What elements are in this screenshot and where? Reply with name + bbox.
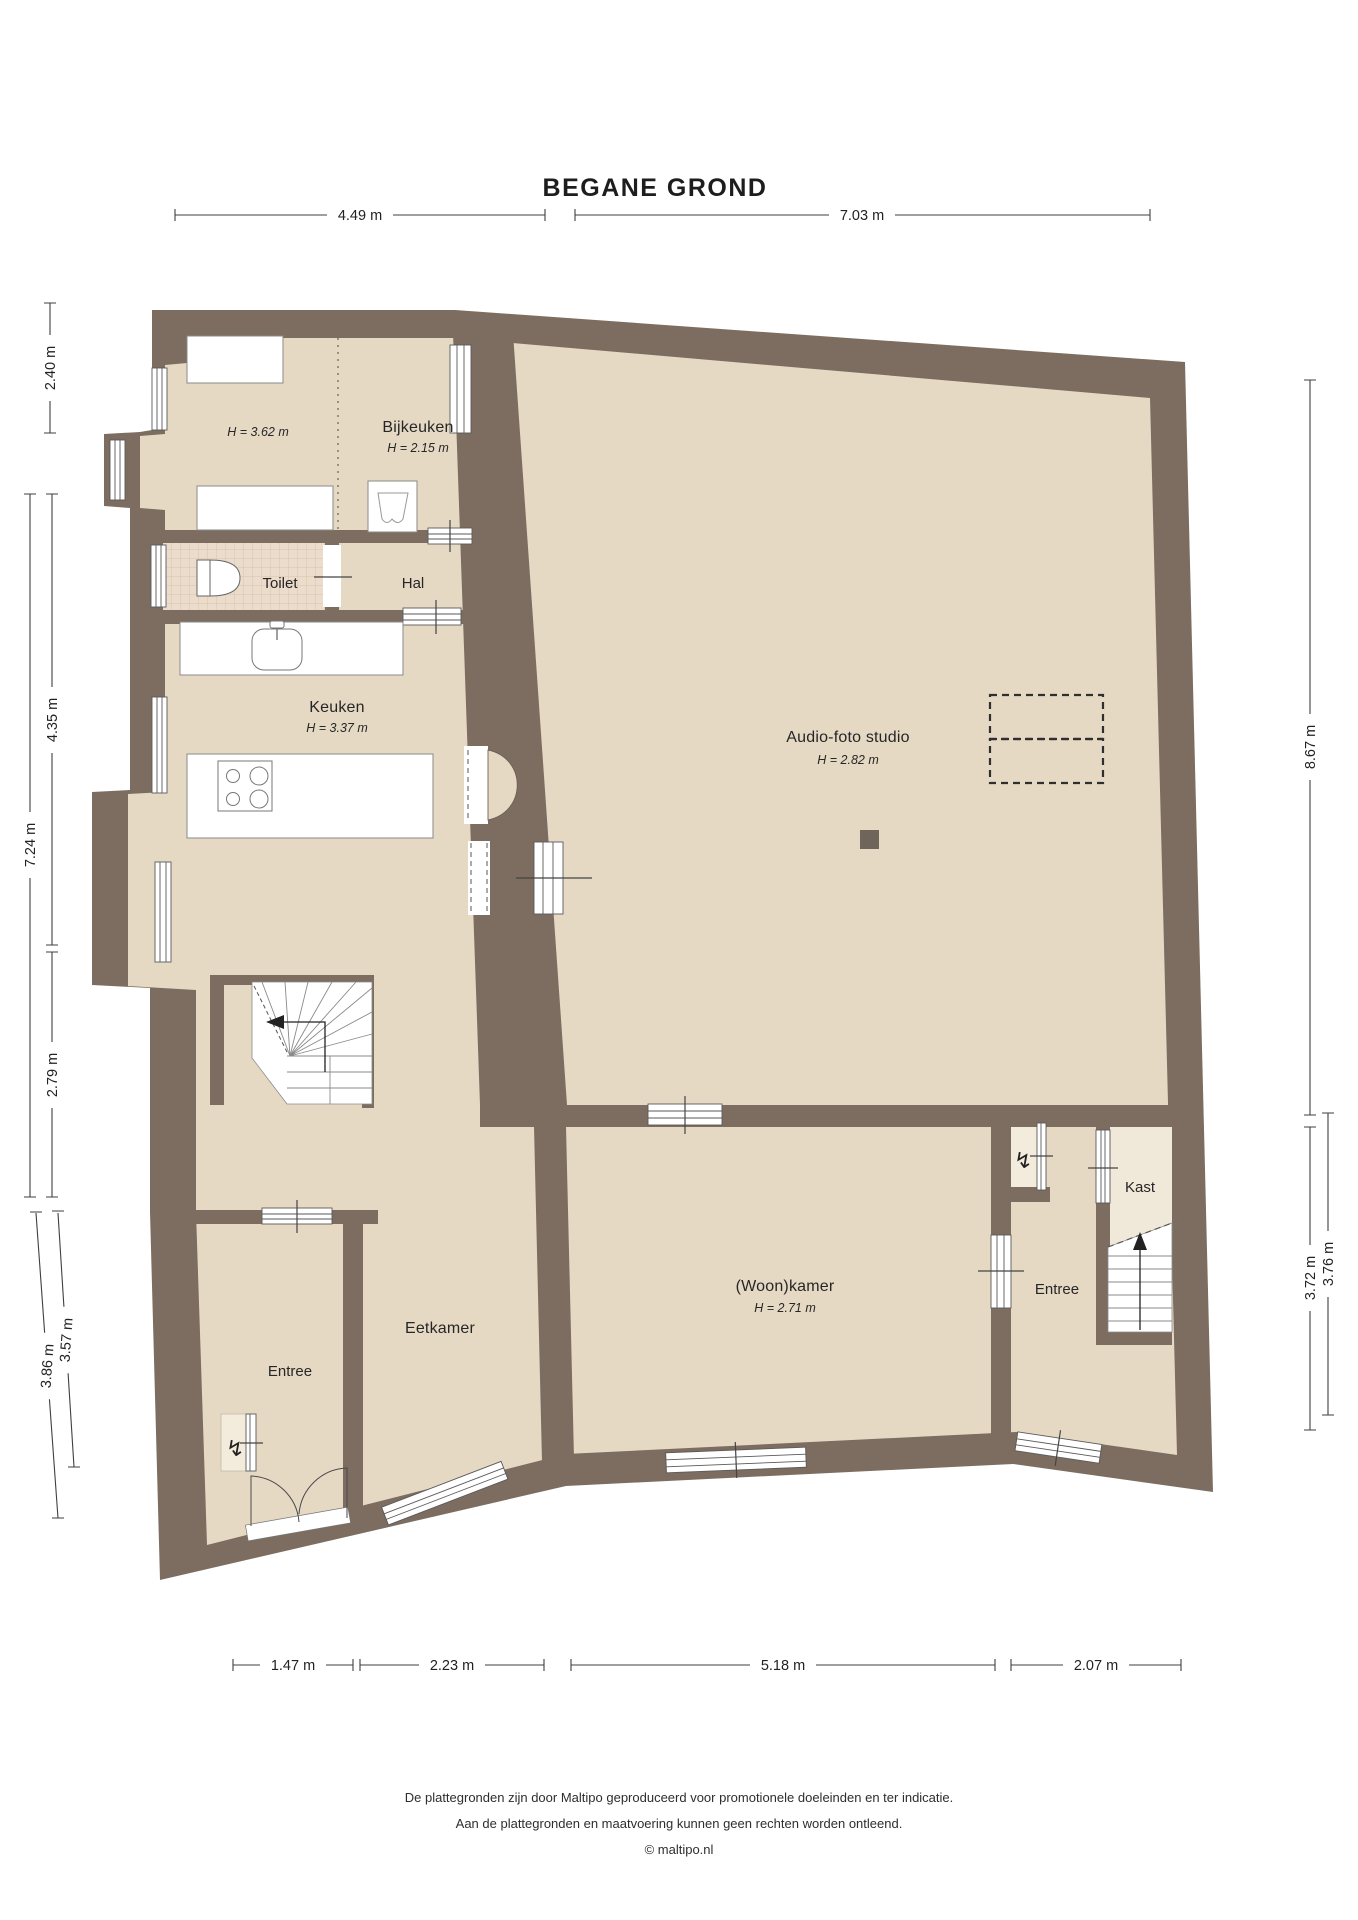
dimension-left-1: 2.40 m <box>40 303 60 433</box>
dimension-bottom-4: 2.07 m <box>1011 1654 1181 1674</box>
dimension-top-2: 7.03 m <box>575 204 1150 224</box>
room-label-entree-right: Entree <box>1035 1281 1079 1298</box>
floorplan-page: BEGANE GROND <box>0 0 1358 1920</box>
stove-icon <box>187 754 433 838</box>
opening-mainwall-dashed <box>468 841 490 915</box>
footer: De plattegronden zijn door Maltipo gepro… <box>405 1790 954 1857</box>
room-label-eetkamer: Eetkamer <box>405 1320 476 1337</box>
room-label-woonkamer: (Woon)kamer <box>736 1278 835 1295</box>
floorplan-drawing: BEGANE GROND <box>0 0 1358 1920</box>
svg-text:2.40 m: 2.40 m <box>43 346 59 390</box>
dimension-left-6: 3.57 m <box>52 1211 80 1467</box>
room-height-keuken: H = 3.37 m <box>306 721 368 735</box>
dimension-bottom-2: 2.23 m <box>360 1654 544 1674</box>
svg-text:3.76 m: 3.76 m <box>1321 1242 1337 1286</box>
room-label-hal: Hal <box>402 575 425 592</box>
window-left-2 <box>110 440 125 500</box>
room-label-studio: Audio-foto studio <box>786 729 909 746</box>
room-label-height-left: H = 3.62 m <box>227 425 289 439</box>
dimension-bottom-1: 1.47 m <box>233 1654 353 1674</box>
room-label-bijkeuken: Bijkeuken <box>382 419 453 436</box>
dimension-left-4: 2.79 m <box>42 952 62 1197</box>
room-height-woonkamer: H = 2.71 m <box>754 1301 816 1315</box>
window-left-3 <box>151 545 166 607</box>
electric-meter-icon-left: ↯ <box>226 1436 244 1461</box>
svg-text:8.67 m: 8.67 m <box>1303 725 1319 769</box>
svg-text:2.23 m: 2.23 m <box>430 1658 474 1674</box>
footer-disclaimer-1: De plattegronden zijn door Maltipo gepro… <box>405 1790 954 1805</box>
svg-text:2.79 m: 2.79 m <box>45 1053 61 1097</box>
window-left-4 <box>152 697 167 793</box>
svg-text:4.49 m: 4.49 m <box>338 208 382 224</box>
sink-icon <box>180 621 403 675</box>
svg-text:2.07 m: 2.07 m <box>1074 1658 1118 1674</box>
footer-copyright: © maltipo.nl <box>645 1842 714 1857</box>
counter-bijkeuken <box>197 486 333 530</box>
washer-icon <box>368 481 417 532</box>
room-label-entree-left: Entree <box>268 1363 312 1380</box>
svg-text:3.72 m: 3.72 m <box>1303 1256 1319 1300</box>
room-label-keuken: Keuken <box>309 699 364 716</box>
window-left-1 <box>152 368 167 430</box>
svg-text:1.47 m: 1.47 m <box>271 1658 315 1674</box>
counter-top-left <box>187 336 283 383</box>
page-title: BEGANE GROND <box>543 174 768 202</box>
room-label-kast: Kast <box>1125 1179 1156 1196</box>
svg-text:7.03 m: 7.03 m <box>840 208 884 224</box>
dimension-right-3: 3.76 m <box>1318 1113 1338 1415</box>
svg-text:4.35 m: 4.35 m <box>45 698 61 742</box>
svg-text:7.24 m: 7.24 m <box>23 823 39 867</box>
electric-meter-icon-right: ↯ <box>1014 1148 1032 1173</box>
footer-disclaimer-2: Aan de plattegronden en maatvoering kunn… <box>456 1816 903 1831</box>
room-height-studio: H = 2.82 m <box>817 753 879 767</box>
column <box>860 830 879 849</box>
dimension-left-3: 7.24 m <box>20 494 40 1197</box>
room-height-bijkeuken: H = 2.15 m <box>387 441 449 455</box>
window-left-5 <box>155 862 171 962</box>
dimension-bottom-3: 5.18 m <box>571 1654 995 1674</box>
room-label-toilet: Toilet <box>262 575 298 592</box>
dimension-left-2: 4.35 m <box>42 494 62 945</box>
toilet-icon <box>197 560 240 596</box>
svg-text:5.18 m: 5.18 m <box>761 1658 805 1674</box>
dimension-right-2: 3.72 m <box>1300 1127 1320 1430</box>
dimension-right-1: 8.67 m <box>1300 380 1320 1115</box>
dimension-top-1: 4.49 m <box>175 204 545 224</box>
svg-text:3.57 m: 3.57 m <box>57 1317 76 1362</box>
